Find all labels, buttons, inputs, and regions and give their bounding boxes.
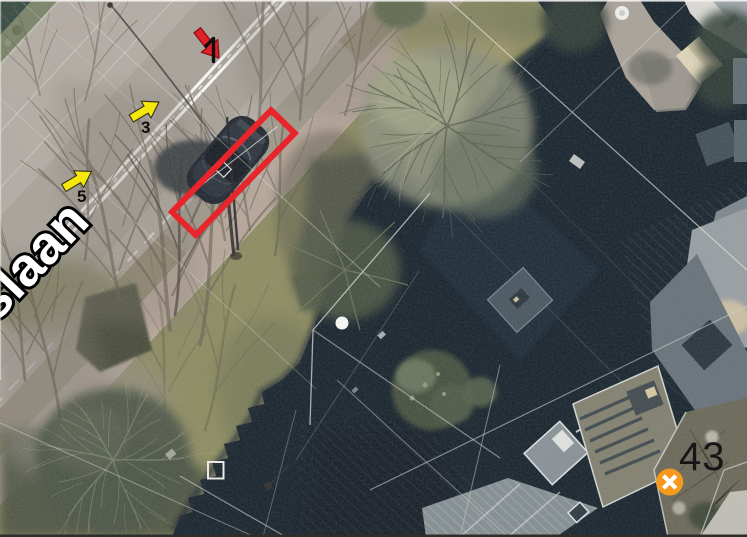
svg-text:5: 5: [77, 187, 86, 206]
svg-text:43: 43: [679, 435, 726, 479]
svg-text:3: 3: [141, 118, 150, 137]
